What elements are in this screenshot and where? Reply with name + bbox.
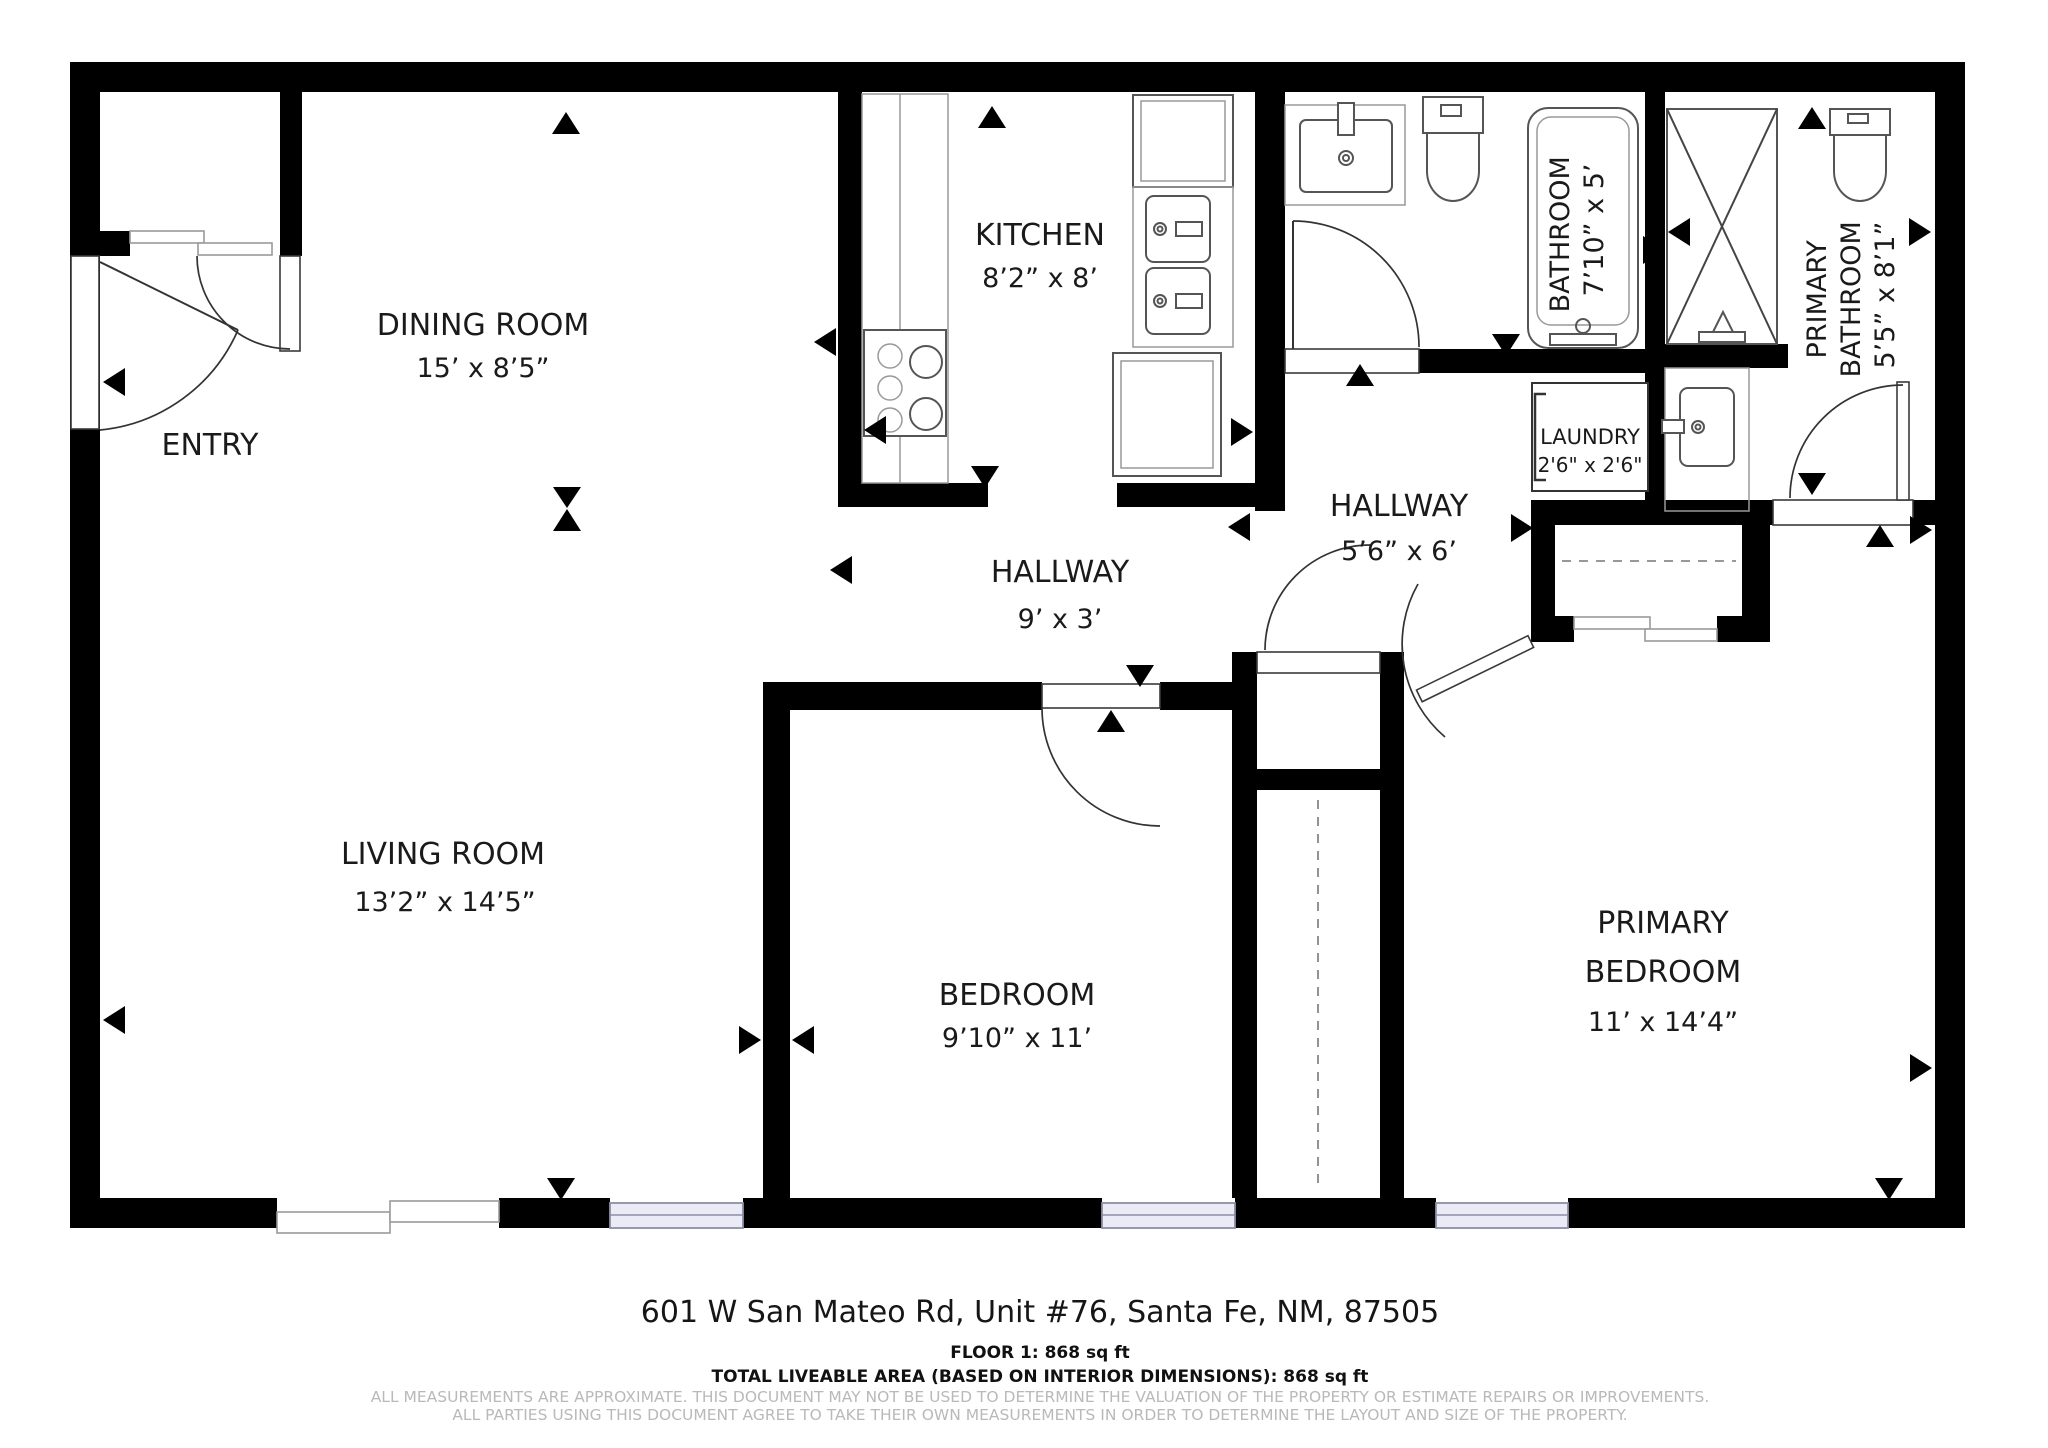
closet-slider — [130, 231, 204, 243]
marker-right-icon — [1231, 418, 1253, 446]
room-label-primary-bathroom: PRIMARY BATHROOM 5’5” x 8’1” — [1802, 213, 1901, 378]
footer: 601 W San Mateo Rd, Unit #76, Santa Fe, … — [371, 1295, 1710, 1424]
primary-bathroom-door-leaf — [1897, 382, 1909, 500]
hall-closet-door-leaf — [1257, 652, 1380, 673]
room-label-entry: ENTRY — [162, 428, 260, 463]
primary-toilet-icon — [1830, 109, 1890, 201]
room-dims-bedroom: 9’10” x 11’ — [942, 1023, 1092, 1054]
room-label-dining: DINING ROOM — [377, 308, 589, 343]
svg-text:PRIMARY BATHROOM: PRIMARY BATHROOM 5’5” x 8’1” — [1802, 213, 1901, 378]
marker-right-icon — [1910, 1054, 1932, 1082]
disclaimer-line-1: ALL MEASUREMENTS ARE APPROXIMATE. THIS D… — [371, 1388, 1710, 1406]
bedroom-door-opening — [1042, 684, 1160, 708]
room-dims-living: 13’2” x 14’5” — [354, 887, 535, 918]
marker-left-icon — [814, 328, 836, 356]
marker-down-icon — [1798, 473, 1826, 495]
primary-bathroom-name-2: BATHROOM — [1836, 221, 1867, 377]
marker-left-icon — [1228, 513, 1250, 541]
marker-up-icon — [553, 509, 581, 531]
closet-door-arc — [197, 256, 290, 349]
patio-step — [390, 1201, 499, 1222]
room-label-hallway-lower: HALLWAY — [991, 555, 1130, 590]
marker-down-icon — [547, 1178, 575, 1200]
stove-icon — [864, 330, 946, 436]
marker-left-icon — [830, 556, 852, 584]
svg-text:BATHROOM 7’10” x 5’: BATHROOM 7’10” x 5’ — [1545, 148, 1610, 313]
marker-up-icon — [978, 106, 1006, 128]
dishwasher-icon — [1113, 353, 1221, 476]
primary-closet-slider — [1574, 617, 1650, 629]
primary-closet-slider — [1645, 629, 1717, 641]
room-dims-primary-bedroom: 11’ x 14’4” — [1588, 1007, 1738, 1038]
room-dims-laundry: 2'6" x 2'6" — [1538, 453, 1643, 477]
room-dims-dining: 15’ x 8’5” — [416, 353, 549, 384]
floor-plan-drawing: DINING ROOM 15’ x 8’5” ENTRY KITCHEN 8’2… — [0, 0, 2048, 1448]
marker-left-icon — [103, 1006, 125, 1034]
primary-sink-icon — [1662, 368, 1749, 511]
primary-bedroom-door-leaf — [1416, 636, 1533, 702]
kitchen-sink-icon — [1133, 187, 1233, 347]
window-bedroom — [1102, 1203, 1235, 1228]
entry-door-opening — [71, 256, 99, 429]
room-label-laundry: LAUNDRY — [1540, 425, 1640, 449]
marker-right-icon — [739, 1026, 761, 1054]
room-label-living: LIVING ROOM — [341, 837, 545, 872]
room-label-primary-bedroom-1: PRIMARY — [1597, 906, 1729, 941]
room-dims-hallway-upper: 5’6” x 6’ — [1341, 536, 1457, 567]
marker-left-icon — [1668, 218, 1690, 246]
marker-right-icon — [1511, 514, 1533, 542]
marker-up-icon — [1798, 107, 1826, 129]
bedroom-door-arc — [1042, 708, 1160, 826]
primary-bathroom-dims: 5’5” x 8’1” — [1870, 222, 1901, 369]
marker-up-icon — [1866, 525, 1894, 547]
total-area-line: TOTAL LIVEABLE AREA (BASED ON INTERIOR D… — [712, 1367, 1369, 1387]
marker-up-icon — [1097, 710, 1125, 732]
marker-right-icon — [1909, 218, 1931, 246]
fridge-icon — [1133, 95, 1233, 187]
closet-slider — [198, 243, 272, 255]
room-dims-hallway-lower: 9’ x 3’ — [1018, 604, 1103, 635]
room-label-primary-bedroom-2: BEDROOM — [1585, 955, 1742, 990]
closet-door-leaf — [280, 256, 300, 351]
bathroom-sink-icon — [1285, 103, 1405, 205]
marker-up-icon — [552, 112, 580, 134]
floor-plan-page: DINING ROOM 15’ x 8’5” ENTRY KITCHEN 8’2… — [0, 0, 2048, 1448]
toilet-icon — [1423, 97, 1483, 201]
bathroom-name: BATHROOM — [1545, 156, 1576, 312]
primary-bathroom-door-opening — [1773, 500, 1913, 525]
bathroom-door-arc — [1293, 221, 1419, 347]
patio-step — [277, 1212, 390, 1233]
primary-bedroom-door-arc — [1402, 584, 1445, 737]
primary-bathroom-name-1: PRIMARY — [1802, 240, 1833, 359]
room-label-hallway-upper: HALLWAY — [1330, 489, 1469, 524]
room-label-bathroom: BATHROOM 7’10” x 5’ — [1545, 148, 1610, 313]
marker-down-icon — [553, 487, 581, 508]
disclaimer-line-2: ALL PARTIES USING THIS DOCUMENT AGREE TO… — [452, 1406, 1627, 1424]
bathroom-dims: 7’10” x 5’ — [1579, 163, 1610, 296]
room-label-bedroom: BEDROOM — [939, 978, 1096, 1013]
window-primary-bedroom — [1436, 1203, 1568, 1228]
bathroom-door-opening — [1285, 349, 1419, 373]
marker-left-icon — [792, 1026, 814, 1054]
address-line: 601 W San Mateo Rd, Unit #76, Santa Fe, … — [641, 1295, 1439, 1330]
window-living — [610, 1203, 743, 1228]
floor-area-line: FLOOR 1: 868 sq ft — [950, 1343, 1129, 1363]
marker-down-icon — [1875, 1178, 1903, 1200]
marker-left-icon — [103, 368, 125, 396]
room-label-kitchen: KITCHEN — [975, 218, 1105, 253]
room-dims-kitchen: 8’2” x 8’ — [982, 263, 1098, 294]
